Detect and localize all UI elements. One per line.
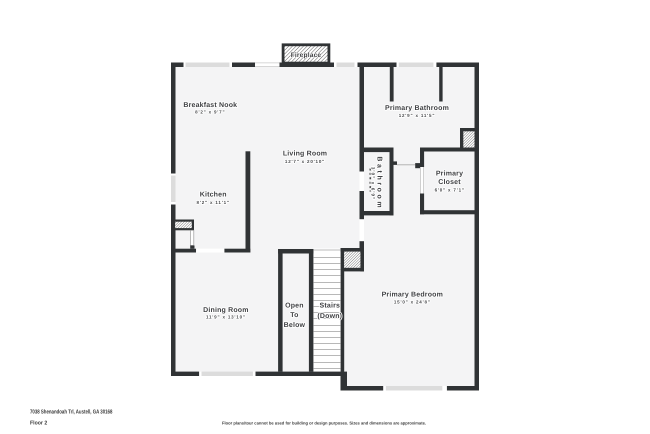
svg-text:8'2" x 9'7": 8'2" x 9'7" <box>195 109 225 114</box>
svg-text:(Down): (Down) <box>317 312 342 320</box>
svg-text:Bathroom: Bathroom <box>376 156 384 210</box>
svg-text:Dining Room: Dining Room <box>203 306 249 314</box>
svg-text:Below: Below <box>284 321 306 329</box>
svg-text:Floor 2: Floor 2 <box>30 420 47 427</box>
svg-text:Primary Bathroom: Primary Bathroom <box>385 104 449 112</box>
svg-text:6'0" x 7'1": 6'0" x 7'1" <box>435 187 465 192</box>
svg-text:3'0" x 6'9": 3'0" x 6'9" <box>371 167 376 201</box>
svg-text:7038 Shenandoah Trl, Austell,: 7038 Shenandoah Trl, Austell, GA 30168 <box>30 408 113 415</box>
svg-text:Closet: Closet <box>438 178 461 186</box>
svg-text:12'7" x 20'10": 12'7" x 20'10" <box>285 159 325 164</box>
svg-text:Fireplace: Fireplace <box>291 52 322 59</box>
svg-text:Kitchen: Kitchen <box>200 190 227 198</box>
svg-text:To: To <box>290 312 298 319</box>
svg-text:12'9" x 11'5": 12'9" x 11'5" <box>399 113 436 118</box>
svg-text:15'0" x 24'8": 15'0" x 24'8" <box>394 299 431 304</box>
svg-text:11'9" x 13'10": 11'9" x 13'10" <box>206 314 246 319</box>
svg-text:Stairs: Stairs <box>320 302 341 310</box>
svg-text:Living Room: Living Room <box>283 149 327 157</box>
svg-text:Primary: Primary <box>436 169 463 177</box>
svg-text:8'2" x 11'1": 8'2" x 11'1" <box>197 200 230 205</box>
svg-text:Open: Open <box>285 302 304 309</box>
svg-text:Floor plans/tour cannot be use: Floor plans/tour cannot be used for buil… <box>222 421 426 426</box>
svg-text:Breakfast Nook: Breakfast Nook <box>183 101 237 109</box>
svg-text:Primary Bedroom: Primary Bedroom <box>382 290 443 298</box>
